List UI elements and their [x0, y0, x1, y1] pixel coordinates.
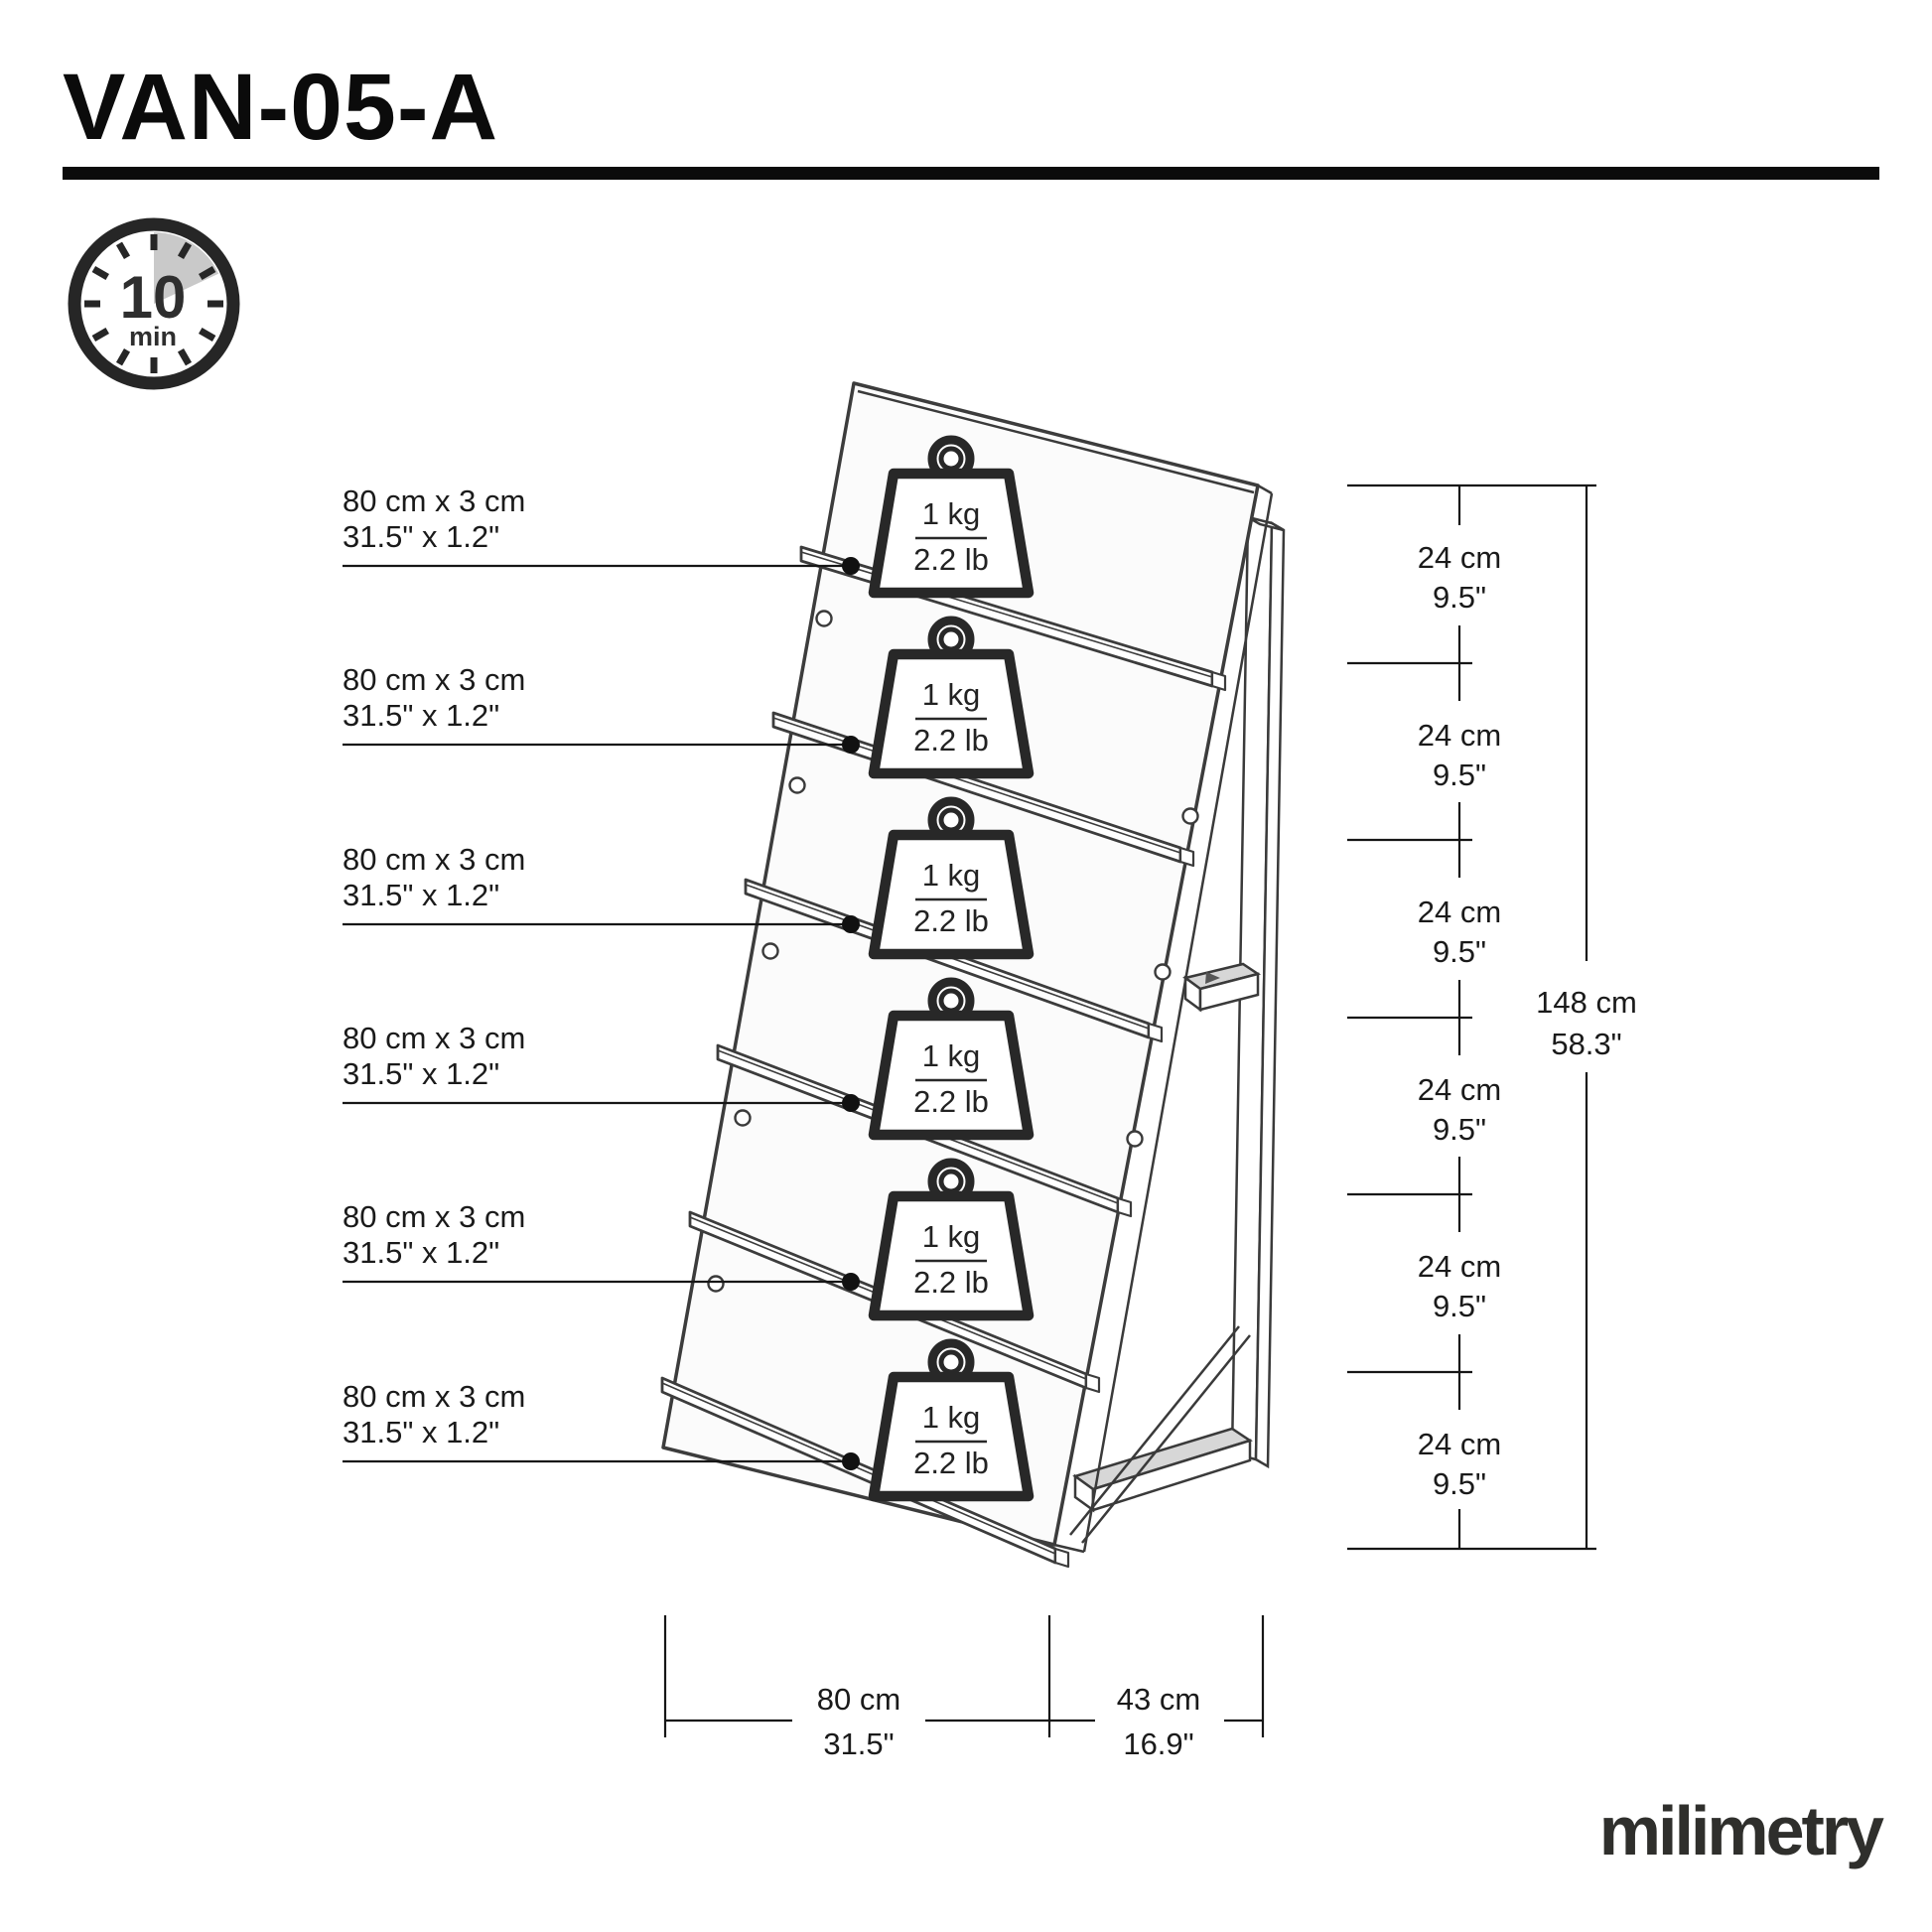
- screw-hole: [817, 612, 832, 626]
- assembly-time-clock-icon: 10 min: [74, 224, 233, 383]
- svg-text:24 cm: 24 cm: [1418, 1072, 1501, 1107]
- svg-text:24 cm: 24 cm: [1418, 540, 1501, 575]
- leader-dot: [842, 1273, 860, 1291]
- clock-unit: min: [129, 322, 177, 351]
- svg-text:9.5": 9.5": [1433, 1466, 1486, 1501]
- dim-43cm: 43 cm 16.9": [1117, 1682, 1200, 1761]
- svg-text:16.9": 16.9": [1123, 1726, 1193, 1761]
- shelf-size-imperial: 31.5" x 1.2": [343, 1415, 499, 1449]
- weight-lb: 2.2 lb: [913, 723, 989, 758]
- bottom-dimensions: 80 cm 31.5" 43 cm 16.9": [665, 1615, 1263, 1761]
- shelf-size-metric: 80 cm x 3 cm: [343, 662, 525, 697]
- dim-24cm: 24 cm 9.5": [1418, 1249, 1501, 1323]
- svg-text:80 cm: 80 cm: [817, 1682, 900, 1717]
- shelf-label: 80 cm x 3 cm 31.5" x 1.2": [343, 662, 860, 754]
- dim-total-height: 148 cm 58.3": [1536, 485, 1637, 1549]
- dim-24cm: 24 cm 9.5": [1418, 540, 1501, 615]
- svg-text:9.5": 9.5": [1433, 934, 1486, 969]
- weight-lb: 2.2 lb: [913, 1084, 989, 1119]
- screw-hole: [1183, 809, 1198, 824]
- dim-24cm: 24 cm 9.5": [1418, 1072, 1501, 1147]
- screw-hole: [1156, 965, 1171, 980]
- leader-dot: [842, 1094, 860, 1112]
- leader-dot: [842, 557, 860, 575]
- svg-text:9.5": 9.5": [1433, 580, 1486, 615]
- shelf-size-metric: 80 cm x 3 cm: [343, 842, 525, 877]
- weight-lb: 2.2 lb: [913, 903, 989, 938]
- title-rule: [63, 167, 1879, 180]
- dimension-sheet: VAN-05-A 10 min: [0, 0, 1932, 1932]
- dim-24cm: 24 cm 9.5": [1418, 1427, 1501, 1501]
- shelf-size-imperial: 31.5" x 1.2": [343, 519, 499, 554]
- dim-24cm: 24 cm 9.5": [1418, 895, 1501, 969]
- side-brace-edge: [1070, 1326, 1239, 1535]
- svg-text:24 cm: 24 cm: [1418, 1249, 1501, 1284]
- shelf-size-metric: 80 cm x 3 cm: [343, 1199, 525, 1234]
- svg-text:148 cm: 148 cm: [1536, 985, 1637, 1020]
- weight-kg: 1 kg: [922, 496, 981, 531]
- weight-kg: 1 kg: [922, 1400, 981, 1435]
- svg-text:24 cm: 24 cm: [1418, 718, 1501, 753]
- weight-lb: 2.2 lb: [913, 1265, 989, 1300]
- svg-text:9.5": 9.5": [1433, 1289, 1486, 1323]
- shelf-size-metric: 80 cm x 3 cm: [343, 483, 525, 518]
- board-corner-edge: [1258, 485, 1272, 493]
- weight-kg: 1 kg: [922, 1038, 981, 1073]
- svg-text:43 cm: 43 cm: [1117, 1682, 1200, 1717]
- svg-text:31.5": 31.5": [823, 1726, 894, 1761]
- page-title: VAN-05-A: [63, 55, 498, 160]
- dim-24cm: 24 cm 9.5": [1418, 718, 1501, 792]
- weight-lb: 2.2 lb: [913, 1446, 989, 1480]
- weight-kg: 1 kg: [922, 677, 981, 712]
- leader-dot: [842, 736, 860, 754]
- weight-kg: 1 kg: [922, 858, 981, 893]
- svg-text:9.5": 9.5": [1433, 758, 1486, 792]
- leader-dot: [842, 915, 860, 933]
- screw-hole: [790, 778, 805, 793]
- shelf-size-metric: 80 cm x 3 cm: [343, 1021, 525, 1055]
- clock-minutes: 10: [120, 264, 187, 331]
- weight-kg: 1 kg: [922, 1219, 981, 1254]
- shelf-size-imperial: 31.5" x 1.2": [343, 1235, 499, 1270]
- diagram-canvas: VAN-05-A 10 min: [0, 0, 1932, 1932]
- svg-text:9.5": 9.5": [1433, 1112, 1486, 1147]
- svg-text:24 cm: 24 cm: [1418, 895, 1501, 929]
- height-dimensions: 24 cm 9.5" 24 cm 9.5" 24 cm 9.5" 24 cm 9…: [1347, 485, 1637, 1549]
- svg-text:24 cm: 24 cm: [1418, 1427, 1501, 1461]
- brand-logo: milimetry: [1599, 1792, 1884, 1869]
- shelf-size-metric: 80 cm x 3 cm: [343, 1379, 525, 1414]
- shelf-size-imperial: 31.5" x 1.2": [343, 1056, 499, 1091]
- svg-text:58.3": 58.3": [1551, 1027, 1621, 1061]
- dim-80cm: 80 cm 31.5": [817, 1682, 900, 1761]
- weight-lb: 2.2 lb: [913, 542, 989, 577]
- shelf-size-imperial: 31.5" x 1.2": [343, 878, 499, 912]
- leader-dot: [842, 1452, 860, 1470]
- screw-hole: [763, 944, 778, 959]
- shelf-size-imperial: 31.5" x 1.2": [343, 698, 499, 733]
- shelf-label: 80 cm x 3 cm 31.5" x 1.2": [343, 483, 860, 575]
- screw-hole: [709, 1277, 724, 1292]
- screw-hole: [736, 1111, 751, 1126]
- screw-hole: [1128, 1132, 1143, 1147]
